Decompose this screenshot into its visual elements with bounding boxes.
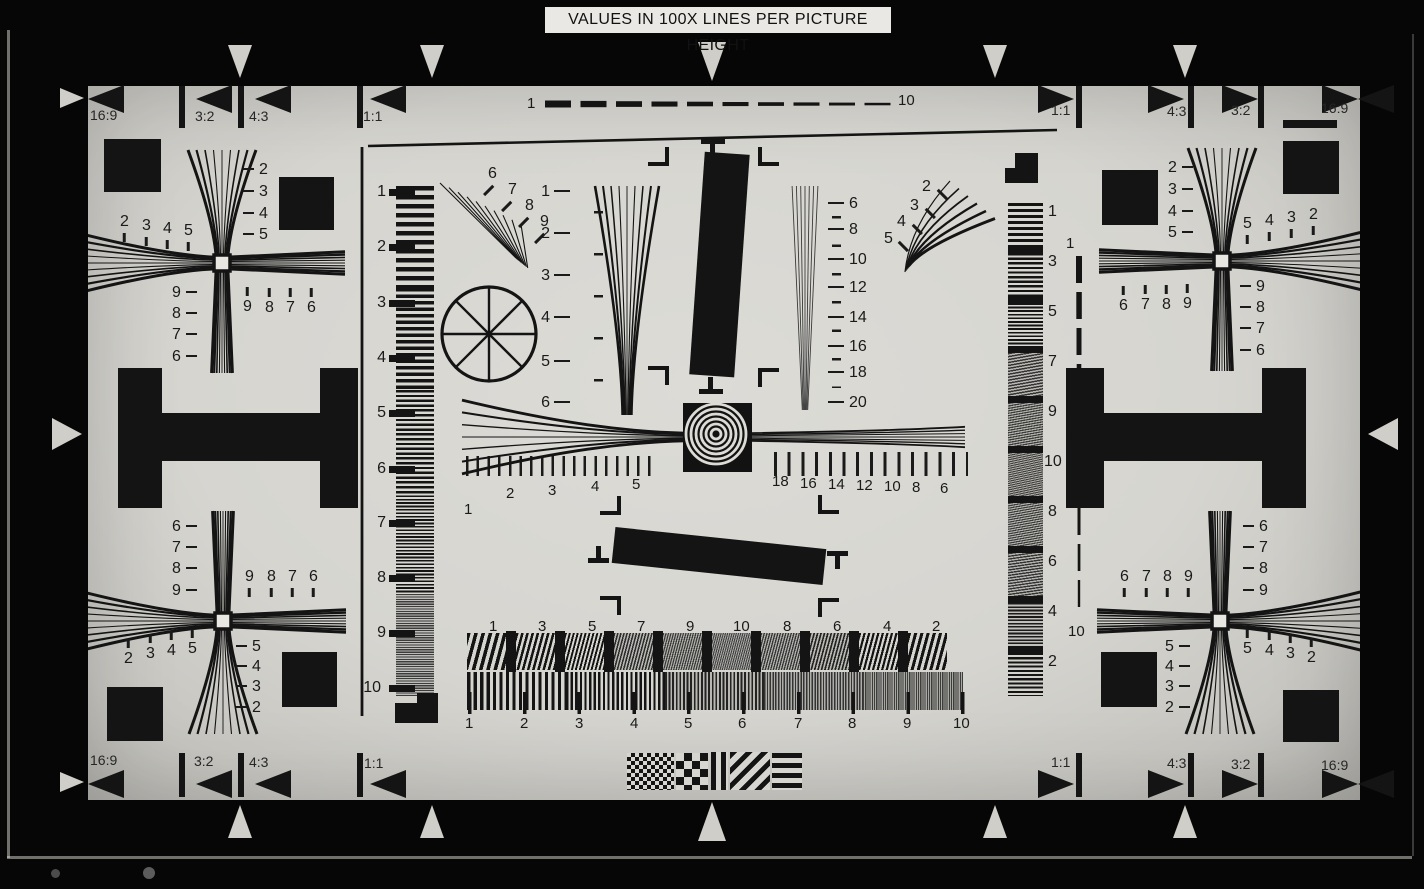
fan-label: 4 — [1265, 643, 1274, 659]
corner-fan-top-left — [67, 150, 345, 373]
wedge-scale-label: 1 — [540, 184, 570, 200]
diag-label: 6 — [488, 166, 497, 182]
fan-label: 9 — [1184, 569, 1193, 585]
aspect-label: 16:9 — [90, 753, 117, 767]
chart-title: VALUES IN 100X LINES PER PICTURE HEIGHT — [545, 7, 891, 33]
fan-label: 4 — [243, 206, 268, 222]
bars-label: 10 — [953, 716, 970, 731]
bracket-mark — [818, 598, 839, 617]
wedge-scale-label: 14 — [828, 310, 867, 326]
bracket-mark — [600, 596, 621, 615]
fan-label: 3 — [146, 646, 155, 662]
registration-triangle — [420, 45, 444, 78]
aspect-label: 1:1 — [364, 756, 383, 770]
aspect-triangle — [1222, 770, 1258, 798]
strip-scale-label: 10 — [357, 680, 381, 696]
bars-label: 6 — [833, 619, 841, 634]
registration-triangle — [1173, 805, 1197, 838]
dashed-line-horizontal — [545, 101, 891, 108]
strip-scale-label: 6 — [1048, 554, 1057, 570]
top-rule-line — [368, 130, 1057, 146]
aspect-label: 1:1 — [363, 109, 382, 123]
fan-label: 8 — [1162, 297, 1171, 313]
fan-label: 6 — [309, 569, 318, 585]
aspect-label: 1:1 — [1051, 103, 1070, 117]
fan-label: 9 — [172, 285, 197, 301]
fan-label: 2 — [1307, 650, 1316, 666]
aspect-triangle — [255, 770, 291, 798]
strip-scale-label: 4 — [1048, 604, 1057, 620]
fan-label: 4 — [163, 221, 172, 237]
fan-label: 5 — [1243, 216, 1252, 232]
strip-scale-label: 3 — [362, 295, 386, 311]
wedge-scale-label: 10 — [828, 252, 867, 268]
registration-triangle — [60, 772, 84, 792]
fan-label: 3 — [236, 679, 261, 695]
bars-label: 4 — [630, 716, 638, 731]
registration-triangle — [1368, 418, 1398, 450]
fan-label: 7 — [172, 327, 197, 343]
fan-label: 8 — [267, 569, 276, 585]
registration-triangle — [983, 45, 1007, 78]
bracket-mark — [758, 368, 779, 387]
aspect-triangle — [196, 770, 232, 798]
fan-label: 7 — [1240, 321, 1265, 337]
wedge-scale-label: 12 — [828, 280, 867, 296]
strip-scale-label: 7 — [362, 515, 386, 531]
strip-scale-label: 1 — [362, 184, 386, 200]
fan-label: 9 — [243, 299, 252, 315]
fan-label: 9 — [245, 569, 254, 585]
strip-scale-label: 6 — [362, 461, 386, 477]
fan-label: 5 — [184, 223, 193, 239]
diag-label: 9 — [540, 214, 549, 230]
wedge-scale-label: 5 — [540, 354, 570, 370]
bracket-mark — [758, 147, 779, 166]
fan-label: 9 — [1240, 279, 1265, 295]
diag-label: 3 — [910, 198, 919, 214]
bars-label: 4 — [883, 619, 891, 634]
fan-label: 4 — [1265, 213, 1274, 229]
aspect-label: 4:3 — [249, 109, 268, 123]
bracket-mark — [648, 366, 669, 385]
bars-label: 8 — [848, 716, 856, 731]
fan-label: 8 — [1163, 569, 1172, 585]
strip-scale-label: 10 — [1044, 454, 1062, 470]
ruler-label: 8 — [912, 480, 920, 495]
center-target — [683, 403, 752, 472]
aspect-triangle — [1322, 770, 1358, 798]
fan-label: 9 — [1183, 296, 1192, 312]
bars-label: 3 — [575, 716, 583, 731]
fan-label: 2 — [243, 162, 268, 178]
fan-label: 6 — [172, 349, 197, 365]
registration-triangle — [420, 805, 444, 838]
aspect-label: 16:9 — [1321, 758, 1348, 772]
bracket-mark — [648, 147, 669, 166]
fan-label: 5 — [1243, 641, 1252, 657]
aspect-label: 3:2 — [194, 754, 213, 768]
diag-label: 4 — [897, 214, 906, 230]
aspect-label: 3:2 — [1231, 103, 1250, 117]
fan-label: 8 — [1243, 561, 1268, 577]
fan-label: 2 — [1168, 160, 1193, 176]
strip-scale-label: 8 — [362, 570, 386, 586]
dash-scale-end: 10 — [898, 93, 915, 108]
strip-scale-label: 2 — [362, 239, 386, 255]
bars-label: 7 — [794, 716, 802, 731]
ruler-label: 2 — [506, 486, 514, 501]
fan-label: 5 — [243, 227, 268, 243]
registration-triangle — [1173, 45, 1197, 78]
center-thin-wedge — [792, 186, 818, 410]
fan-label: 8 — [172, 561, 197, 577]
bars-label: 1 — [489, 619, 497, 634]
registration-triangle — [52, 418, 82, 450]
ruler-label: 3 — [548, 483, 556, 498]
fan-label: 4 — [236, 659, 261, 675]
corner-fan-bottom-right — [1097, 511, 1375, 734]
strip-scale-label: 3 — [1048, 254, 1057, 270]
fan-label: 5 — [188, 641, 197, 657]
bars-label: 2 — [932, 619, 940, 634]
ruler-label: 18 — [772, 474, 789, 489]
fan-label: 9 — [172, 583, 197, 599]
aspect-label: 4:3 — [1167, 756, 1186, 770]
wedge-scale-label: 8 — [828, 222, 858, 238]
registration-triangle — [983, 805, 1007, 838]
fan-label: 4 — [1168, 204, 1193, 220]
ruler-label: 14 — [828, 477, 845, 492]
wedge-scale-label: 6 — [828, 196, 858, 212]
ruler-label: 6 — [940, 481, 948, 496]
fan-label: 8 — [265, 300, 274, 316]
spoke-wheel-icon — [442, 287, 536, 381]
fan-label: 2 — [124, 651, 133, 667]
strip-scale-label: 5 — [362, 405, 386, 421]
fan-label: 9 — [1243, 583, 1268, 599]
bars-label: 2 — [520, 716, 528, 731]
fan-label: 2 — [1165, 700, 1190, 716]
strip-scale-label: 9 — [1048, 404, 1057, 420]
bars-label: 3 — [538, 619, 546, 634]
wedge-scale-label: 16 — [828, 339, 867, 355]
tilted-bar-horizontal — [612, 527, 827, 585]
wedge-scale-label: 3 — [540, 268, 570, 284]
strip-scale-label: 8 — [1048, 504, 1057, 520]
bars-label: 7 — [637, 619, 645, 634]
bars-label: 9 — [686, 619, 694, 634]
strip-scale-label: 2 — [1048, 654, 1057, 670]
fan-label: 2 — [120, 214, 129, 230]
fan-label: 3 — [1168, 182, 1193, 198]
aspect-label: 16:9 — [1321, 101, 1348, 115]
ruler-label: 1 — [464, 502, 472, 517]
fan-label: 6 — [307, 300, 316, 316]
fan-label: 5 — [1165, 639, 1190, 655]
fan-label: 6 — [1120, 569, 1129, 585]
ruler-label: 10 — [884, 479, 901, 494]
fan-label: 6 — [172, 519, 197, 535]
fan-label: 7 — [172, 540, 197, 556]
strip-scale-label: 1 — [1048, 204, 1057, 220]
bars-label: 10 — [733, 619, 750, 634]
strip-scale-label: 9 — [362, 625, 386, 641]
photo-of-resolution-test-chart: VALUES IN 100X LINES PER PICTURE HEIGHT — [0, 0, 1424, 889]
curved-wedge-right — [905, 181, 995, 272]
dash-scale-start: 1 — [527, 96, 535, 111]
ruler-label: 16 — [800, 476, 817, 491]
fan-label: 3 — [1287, 210, 1296, 226]
fan-label: 3 — [1165, 679, 1190, 695]
dash-scale-end: 10 — [1068, 624, 1085, 639]
aspect-triangle — [88, 770, 124, 798]
aspect-label: 3:2 — [195, 109, 214, 123]
ruler-label: 4 — [591, 479, 599, 494]
aspect-triangle — [1038, 770, 1074, 798]
wedge-scale-label: 20 — [828, 395, 867, 411]
fan-label: 2 — [236, 700, 261, 716]
registration-triangle — [60, 88, 84, 108]
fan-label: 8 — [172, 306, 197, 322]
bracket-mark — [600, 496, 621, 515]
aspect-label: 16:9 — [90, 108, 117, 122]
fan-label: 6 — [1119, 298, 1128, 314]
chart-graphics — [0, 0, 1424, 889]
bars-label: 5 — [684, 716, 692, 731]
fan-label: 6 — [1240, 343, 1265, 359]
fan-label: 7 — [1142, 569, 1151, 585]
aspect-triangle — [1358, 770, 1394, 798]
strip-scale-label: 4 — [362, 350, 386, 366]
registration-triangle — [228, 805, 252, 838]
bracket-mark — [818, 495, 839, 514]
corner-fan-bottom-left — [68, 511, 346, 734]
bars-label: 1 — [465, 716, 473, 731]
dash-scale-start: 1 — [1066, 236, 1074, 251]
fan-label: 7 — [1141, 297, 1150, 313]
ruler-label: 12 — [856, 478, 873, 493]
fan-label: 3 — [142, 218, 151, 234]
corner-fan-top-right — [1099, 148, 1377, 371]
diag-label: 7 — [508, 182, 517, 198]
strip-scale-label: 7 — [1048, 354, 1057, 370]
fan-label: 4 — [167, 643, 176, 659]
aspect-label: 1:1 — [1051, 755, 1070, 769]
strip-scale-label: 5 — [1048, 304, 1057, 320]
aspect-label: 4:3 — [1167, 104, 1186, 118]
fan-label: 4 — [1165, 659, 1190, 675]
aspect-label: 4:3 — [249, 755, 268, 769]
diag-label: 8 — [525, 198, 534, 214]
wedge-scale-label: 18 — [828, 365, 867, 381]
dashed-line-vertical — [1076, 256, 1082, 607]
fan-label: 5 — [1168, 225, 1193, 241]
bars-label: 6 — [738, 716, 746, 731]
aspect-triangle — [1358, 85, 1394, 113]
registration-triangle — [228, 45, 252, 78]
registration-triangle — [698, 802, 726, 841]
fan-label: 6 — [1243, 519, 1268, 535]
ruler-label: 5 — [632, 477, 640, 492]
wedge-scale-label: 6 — [540, 395, 570, 411]
fan-label: 2 — [1309, 207, 1318, 223]
fan-label: 3 — [243, 184, 268, 200]
fan-label: 3 — [1286, 646, 1295, 662]
fan-label: 7 — [288, 569, 297, 585]
fan-label: 5 — [236, 639, 261, 655]
bars-label: 8 — [783, 619, 791, 634]
fan-label: 8 — [1240, 300, 1265, 316]
wedge-scale-label: 4 — [540, 310, 570, 326]
fan-label: 7 — [1243, 540, 1268, 556]
aspect-triangle — [370, 770, 406, 798]
diag-label: 5 — [884, 231, 893, 247]
aspect-triangle — [1148, 770, 1184, 798]
diag-label: 2 — [922, 179, 931, 195]
tilted-bar-vertical — [689, 152, 749, 378]
aspect-label: 3:2 — [1231, 757, 1250, 771]
bars-label: 5 — [588, 619, 596, 634]
bars-label: 9 — [903, 716, 911, 731]
fan-label: 7 — [286, 300, 295, 316]
